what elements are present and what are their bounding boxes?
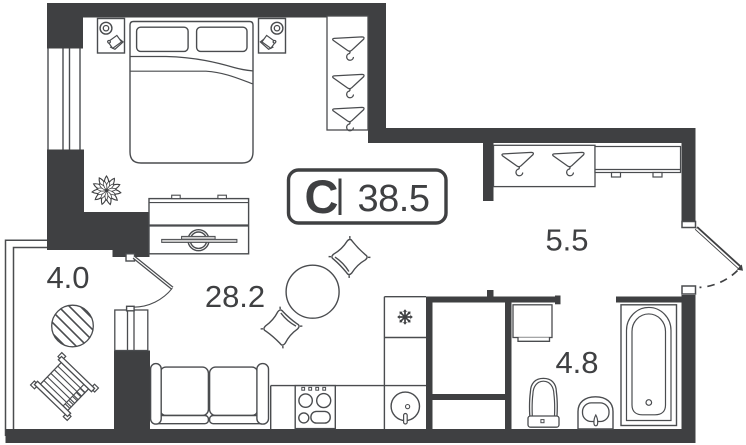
- svg-text:28.2: 28.2: [205, 279, 265, 314]
- svg-text:4.8: 4.8: [555, 345, 598, 380]
- svg-text:C: C: [305, 170, 339, 223]
- svg-text:38.5: 38.5: [358, 178, 430, 220]
- svg-text:5.5: 5.5: [545, 223, 588, 258]
- svg-text:4.0: 4.0: [46, 260, 89, 295]
